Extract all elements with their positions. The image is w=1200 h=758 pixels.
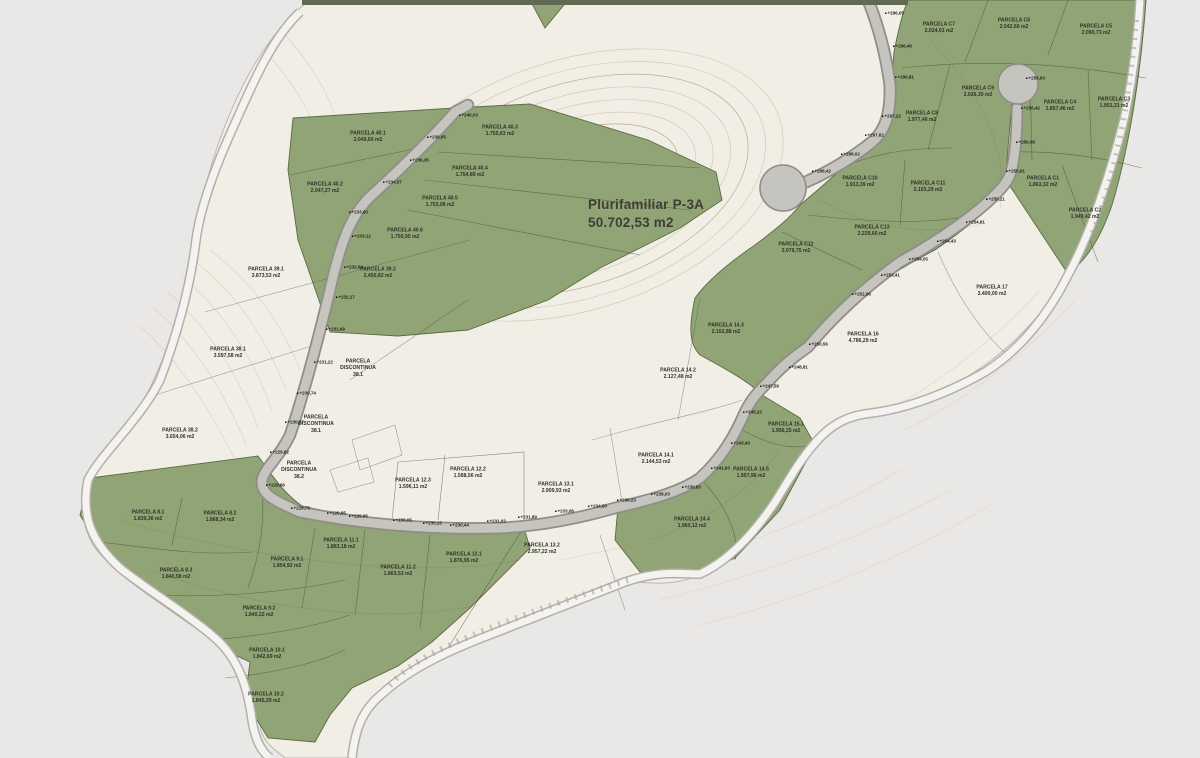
elevation-mark: +236,23	[617, 498, 636, 503]
plan-title-area: 50.702,53 m2	[588, 214, 704, 232]
elevation-mark: +254,05	[909, 257, 928, 262]
parcel-label: PARCELA 40.51.753,08 m2	[422, 195, 458, 208]
parcel-label: PARCELA 15.11.956,25 m2	[768, 421, 804, 434]
elevation-mark: +255,21	[986, 197, 1005, 202]
elevation-mark: +233,12	[352, 234, 371, 239]
parcel-label: PARCELA 39.13.873,53 m2	[248, 266, 284, 279]
elevation-mark: +254,43	[937, 239, 956, 244]
elevation-mark: +229,75	[291, 506, 310, 511]
parcel-label: PARCELA 11.21.863,53 m2	[380, 564, 415, 577]
elevation-mark: +230,74	[297, 391, 316, 396]
parcel-label: PARCELA C132.229,60 m2	[854, 224, 889, 237]
elevation-mark: +256,42	[1021, 106, 1040, 111]
parcel-label: PARCELA 39.22.450,82 m2	[360, 266, 396, 279]
parcel-label: PARCELA 173.400,00 m2	[976, 284, 1007, 297]
parcel-label: PARCELA 38.23.654,06 m2	[162, 427, 198, 440]
parcel-label: PARCELA C112.103,29 m2	[911, 180, 946, 193]
elevation-mark: +243,43	[731, 441, 750, 446]
elevation-mark: +256,08	[1016, 140, 1035, 145]
parcel-label: PARCELA 9.11.854,92 m2	[271, 556, 304, 569]
parcel-label: PARCELA 40.31.755,63 m2	[482, 124, 518, 137]
site-plan: Plurifamiliar P-3A 50.702,53 m2 PARCELA …	[0, 0, 1200, 758]
parcel-label: PARCELA 40.22.047,27 m2	[307, 181, 343, 194]
parcel-label: PARCELA 10.11.842,69 m2	[249, 647, 285, 660]
elevation-mark: +229,82	[270, 450, 289, 455]
parcel-label: PARCELA 13.22.957,22 m2	[524, 542, 560, 555]
parcel-label: PARCELA C92.026,30 m2	[962, 85, 994, 98]
parcel-label: PARCELA 14.51.957,96 m2	[733, 466, 769, 479]
parcel-label: PARCELA C62.042,60 m2	[998, 17, 1030, 30]
elevation-mark: +296,46	[893, 44, 912, 49]
elevation-mark: +298,42	[812, 169, 831, 174]
plan-title: Plurifamiliar P-3A 50.702,53 m2	[588, 196, 704, 232]
elevation-mark: +230,44	[450, 523, 469, 528]
elevation-mark: +238,03	[651, 492, 670, 497]
elevation-mark: +255,61	[1006, 169, 1025, 174]
parcel-label: PARCELA 8.31.840,58 m2	[160, 567, 193, 580]
parcel-label: PARCELA C101.913,39 m2	[842, 175, 877, 188]
parcel-label: PARCELA 40.41.754,89 m2	[452, 165, 488, 178]
parcel-label: PARCELA 14.22.127,48 m2	[660, 367, 696, 380]
parcel-label: PARCELA 12.21.588,56 m2	[450, 466, 486, 479]
parcel-label: PARCELA 10.21.845,29 m2	[248, 691, 284, 704]
parcel-label: PARCELA C72.024,01 m2	[923, 21, 955, 34]
elevation-mark: +239,83	[682, 485, 701, 490]
parcel-label: PARCELA 12.11.876,95 m2	[446, 551, 482, 564]
parcel-label: PARCELA C52.090,73 m2	[1080, 23, 1112, 36]
elevation-mark: +233,06	[555, 509, 574, 514]
parcel-label: PARCELA 38.13.597,58 m2	[210, 346, 246, 359]
elevation-mark: +296,81	[895, 75, 914, 80]
parcel-label: PARCELA C81.977,46 m2	[906, 110, 938, 123]
elevation-mark: +231,02	[487, 519, 506, 524]
elevation-mark: +245,23	[743, 410, 762, 415]
parcel-label: PARCELA 40.12.049,60 m2	[350, 130, 386, 143]
elevation-mark: +229,66	[266, 483, 285, 488]
elevation-mark: +230,27	[285, 420, 304, 425]
elevation-mark: +253,41	[881, 273, 900, 278]
parcel-label: PARCELA C11.863,32 m2	[1027, 175, 1059, 188]
elevation-mark: +256,63	[1026, 76, 1045, 81]
elevation-mark: +297,62	[865, 133, 884, 138]
parcel-label: PARCELA C41.857,46 m2	[1044, 99, 1076, 112]
parcel-label: PARCELA C122.079,75 m2	[778, 241, 813, 254]
elevation-mark: +231,22	[314, 360, 333, 365]
elevation-mark: +240,03	[459, 113, 478, 118]
elevation-mark: +298,02	[841, 152, 860, 157]
labels-layer: Plurifamiliar P-3A 50.702,53 m2 PARCELA …	[0, 0, 1200, 758]
parcel-label: PARCELA 40.61.750,95 m2	[387, 227, 423, 240]
elevation-mark: +232,17	[336, 295, 355, 300]
elevation-mark: +250,56	[809, 342, 828, 347]
parcel-label: PARCELA 9.21.840,22 m2	[243, 605, 276, 618]
parcel-label: PARCELA C21.949,42 m2	[1069, 207, 1101, 220]
elevation-mark: +296,05	[885, 11, 904, 16]
elevation-mark: +238,05	[427, 135, 446, 140]
parcel-label: PARCELADISCONTINUA38.1	[340, 358, 376, 378]
parcel-label: PARCELA 164.786,29 m2	[847, 331, 878, 344]
elevation-mark: +229,95	[349, 514, 368, 519]
parcel-label: PARCELA 8.11.839,36 m2	[132, 509, 165, 522]
elevation-mark: +229,85	[327, 511, 346, 516]
elevation-mark: +297,22	[882, 114, 901, 119]
elevation-mark: +241,63	[711, 466, 730, 471]
elevation-mark: +252,96	[852, 292, 871, 297]
parcel-label: PARCELADISCONTINUA38.2	[281, 460, 317, 480]
elevation-mark: +231,69	[326, 327, 345, 332]
parcel-label: PARCELA 14.32.152,88 m2	[708, 322, 744, 335]
elevation-mark: +248,81	[789, 365, 808, 370]
elevation-mark: +230,05	[393, 518, 412, 523]
parcel-label: PARCELA 13.12.909,93 m2	[538, 481, 574, 494]
elevation-mark: +247,59	[760, 384, 779, 389]
elevation-mark: +230,15	[423, 521, 442, 526]
parcel-label: PARCELA 14.12.144,53 m2	[638, 452, 674, 465]
parcel-label: PARCELA 11.11.863,18 m2	[323, 537, 358, 550]
parcel-label: PARCELA 12.31.596,11 m2	[395, 477, 431, 490]
elevation-mark: +236,35	[410, 158, 429, 163]
parcel-label: PARCELA 8.21.868,34 m2	[204, 510, 237, 523]
elevation-mark: +231,89	[518, 515, 537, 520]
plan-title-name: Plurifamiliar P-3A	[588, 196, 704, 214]
parcel-label: PARCELA 14.41.960,12 m2	[674, 516, 710, 529]
parcel-label: PARCELA C31.951,31 m2	[1098, 96, 1130, 109]
elevation-mark: +232,64	[344, 265, 363, 270]
elevation-mark: +233,60	[349, 210, 368, 215]
elevation-mark: +254,81	[966, 220, 985, 225]
elevation-mark: +234,50	[588, 504, 607, 509]
elevation-mark: +234,57	[383, 180, 402, 185]
